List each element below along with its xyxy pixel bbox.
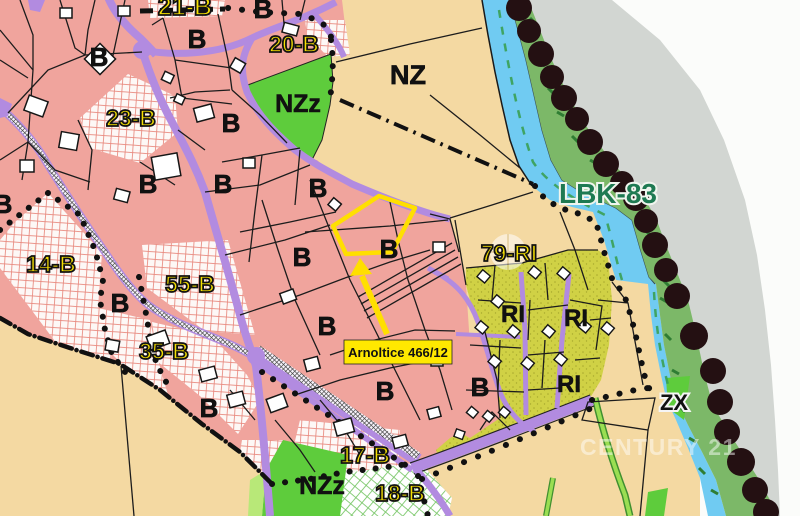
svg-text:23-B: 23-B bbox=[106, 105, 156, 131]
svg-text:17-B: 17-B bbox=[340, 442, 390, 468]
svg-text:B: B bbox=[293, 242, 312, 272]
svg-text:55-B: 55-B bbox=[165, 271, 215, 297]
svg-text:B: B bbox=[111, 288, 130, 318]
svg-text:B: B bbox=[471, 372, 490, 402]
svg-text:B: B bbox=[188, 24, 207, 54]
svg-text:20-B: 20-B bbox=[269, 31, 319, 57]
svg-text:RI: RI bbox=[564, 305, 588, 332]
svg-text:ZX: ZX bbox=[660, 390, 688, 415]
svg-text:35-B: 35-B bbox=[139, 338, 189, 364]
svg-text:14-B: 14-B bbox=[26, 251, 76, 277]
svg-text:NZz: NZz bbox=[299, 472, 345, 500]
svg-text:RI: RI bbox=[501, 301, 525, 328]
svg-text:CENTURY 21: CENTURY 21 bbox=[580, 434, 737, 460]
svg-text:21-B: 21-B bbox=[158, 0, 212, 21]
svg-text:RI: RI bbox=[557, 371, 581, 398]
svg-text:B: B bbox=[318, 311, 337, 341]
svg-text:18-B: 18-B bbox=[375, 480, 425, 506]
svg-text:B: B bbox=[90, 42, 109, 72]
svg-text:B: B bbox=[222, 108, 241, 138]
svg-text:NZz: NZz bbox=[275, 90, 321, 118]
svg-text:B: B bbox=[380, 234, 399, 264]
svg-text:B: B bbox=[254, 0, 273, 24]
svg-text:B: B bbox=[376, 376, 395, 406]
svg-text:B: B bbox=[200, 393, 219, 423]
svg-text:79-RI: 79-RI bbox=[481, 240, 537, 266]
svg-text:B: B bbox=[309, 173, 328, 203]
svg-text:Arnoltice 466/12: Arnoltice 466/12 bbox=[348, 345, 448, 360]
svg-text:B: B bbox=[0, 189, 12, 219]
svg-text:B: B bbox=[139, 169, 158, 199]
svg-text:LBK-83: LBK-83 bbox=[559, 178, 657, 209]
svg-text:NZ: NZ bbox=[390, 60, 426, 90]
svg-text:B: B bbox=[214, 169, 233, 199]
